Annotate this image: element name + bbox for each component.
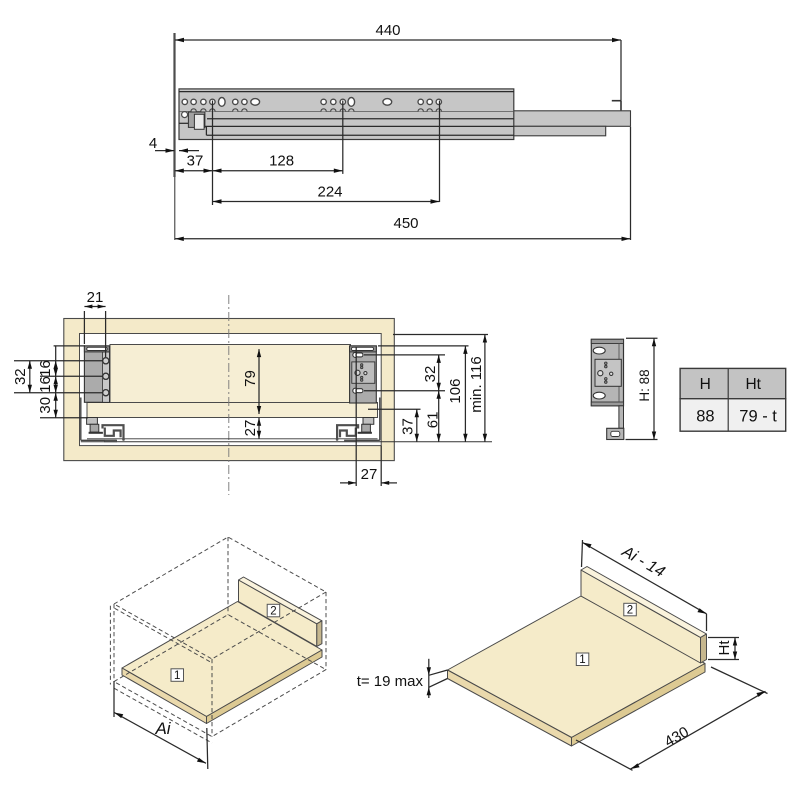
svg-text:88: 88 bbox=[696, 408, 714, 426]
svg-text:37: 37 bbox=[400, 418, 417, 435]
svg-text:Ht: Ht bbox=[716, 640, 733, 656]
svg-text:21: 21 bbox=[87, 289, 104, 306]
svg-text:H: H bbox=[700, 376, 711, 393]
svg-text:16: 16 bbox=[37, 376, 54, 393]
svg-text:32: 32 bbox=[12, 368, 29, 385]
svg-text:32: 32 bbox=[422, 366, 439, 383]
svg-text:224: 224 bbox=[317, 183, 342, 200]
svg-text:2: 2 bbox=[270, 605, 276, 617]
svg-text:t= 19 max: t= 19 max bbox=[357, 673, 424, 690]
svg-text:27: 27 bbox=[361, 466, 378, 483]
svg-text:37: 37 bbox=[187, 153, 204, 170]
svg-text:Ai: Ai bbox=[154, 719, 171, 738]
svg-text:440: 440 bbox=[375, 22, 400, 39]
svg-text:Ai - 14: Ai - 14 bbox=[618, 543, 668, 581]
svg-text:61: 61 bbox=[425, 412, 442, 429]
svg-text:16: 16 bbox=[37, 360, 54, 377]
svg-text:4: 4 bbox=[149, 135, 157, 152]
svg-text:128: 128 bbox=[269, 153, 294, 170]
svg-text:1: 1 bbox=[579, 654, 585, 666]
svg-text:450: 450 bbox=[393, 215, 418, 232]
svg-text:27: 27 bbox=[242, 420, 259, 437]
svg-text:Ht: Ht bbox=[745, 376, 761, 393]
svg-text:H: 88: H: 88 bbox=[637, 369, 652, 401]
svg-text:1: 1 bbox=[174, 670, 180, 682]
svg-text:min. 116: min. 116 bbox=[468, 356, 485, 412]
svg-text:2: 2 bbox=[627, 604, 633, 616]
svg-text:30: 30 bbox=[37, 397, 54, 414]
svg-text:430: 430 bbox=[662, 723, 692, 750]
svg-text:106: 106 bbox=[447, 379, 464, 404]
svg-text:79 - t: 79 - t bbox=[739, 408, 777, 426]
svg-text:79: 79 bbox=[242, 370, 259, 387]
